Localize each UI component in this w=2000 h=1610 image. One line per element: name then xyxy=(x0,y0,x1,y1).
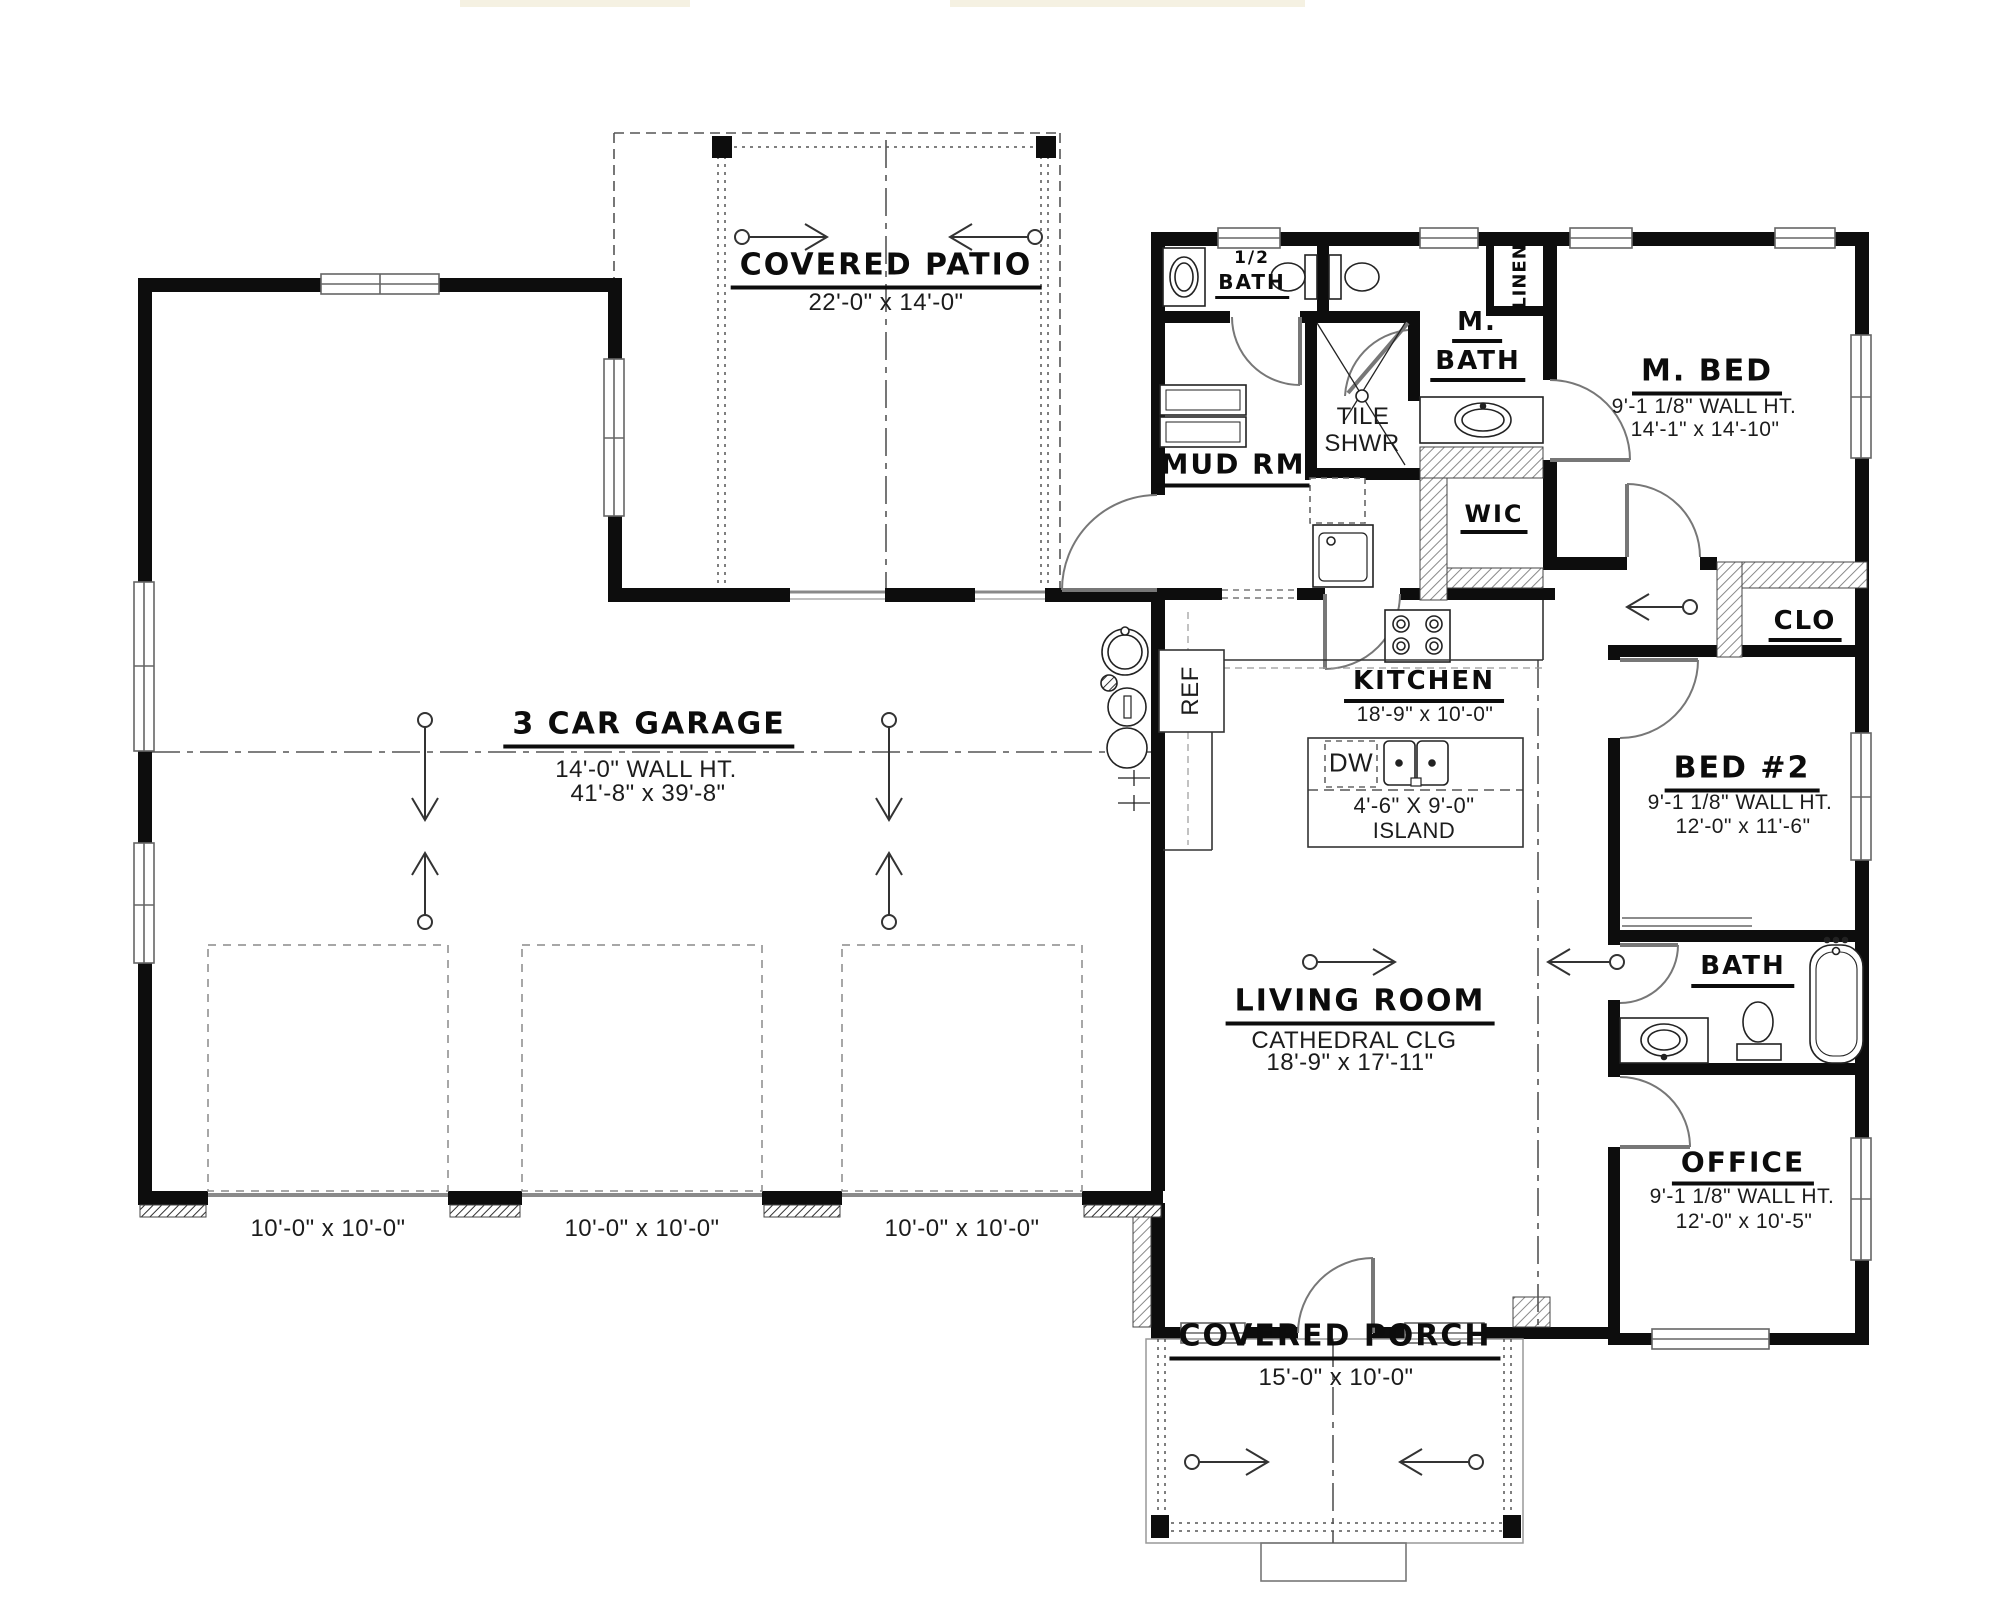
garage-dims: 41'-8" x 39'-8" xyxy=(570,780,725,808)
tile-shower-label-2: SHWR xyxy=(1324,430,1399,458)
bath-title: BATH xyxy=(1691,951,1794,981)
garage-bay-outlines xyxy=(208,945,1082,1191)
office-title: OFFICE xyxy=(1672,1146,1814,1179)
linen-label: LINEN xyxy=(1510,243,1531,309)
tile-shower-label-1: TILE xyxy=(1337,403,1390,431)
kitchen-dims: 18'-9" x 10'-0" xyxy=(1357,703,1494,727)
garage-door-1-dims: 10'-0" x 10'-0" xyxy=(250,1215,405,1243)
half-bath-label-1: 1/2 xyxy=(1234,248,1270,268)
bed2-dims: 12'-0" x 11'-6" xyxy=(1675,815,1810,839)
patio-title: COVERED PATIO xyxy=(731,248,1042,283)
porch-dims: 15'-0" x 10'-0" xyxy=(1258,1364,1413,1392)
patio-post xyxy=(1036,136,1056,158)
garage-door-3-dims: 10'-0" x 10'-0" xyxy=(884,1215,1039,1243)
master-bed-title: M. BED xyxy=(1632,354,1782,389)
patio-dims: 22'-0" x 14'-0" xyxy=(808,289,963,317)
porch-post xyxy=(1151,1515,1169,1538)
island-dims: 4'-6" X 9'-0" xyxy=(1353,793,1474,819)
bed2-wall-height: 9'-1 1/8" WALL HT. xyxy=(1648,791,1833,815)
covered-patio-outline xyxy=(614,133,1060,588)
master-bath-label-1: M. xyxy=(1452,307,1502,337)
patio-post xyxy=(712,136,732,158)
master-bed-dims: 14'-1" x 14'-10" xyxy=(1631,418,1780,442)
kitchen-title: KITCHEN xyxy=(1344,666,1504,696)
island-label: ISLAND xyxy=(1373,818,1455,844)
garage-title: 3 CAR GARAGE xyxy=(503,707,794,742)
mud-room-title: MUD RM xyxy=(1156,448,1309,481)
closet-title: CLO xyxy=(1769,606,1842,636)
porch-post xyxy=(1503,1515,1521,1538)
wic-title: WIC xyxy=(1460,500,1527,528)
porch-title: COVERED PORCH xyxy=(1169,1319,1500,1354)
bed2-title: BED #2 xyxy=(1665,751,1820,786)
master-bath-label-2: BATH xyxy=(1430,346,1525,376)
living-room-dims: 18'-9" x 17'-11" xyxy=(1266,1049,1433,1077)
living-room-title: LIVING ROOM xyxy=(1226,984,1495,1019)
dishwasher-label: DW xyxy=(1329,748,1373,779)
floor-plan-canvas: COVERED PATIO 22'-0" x 14'-0" 3 CAR GARA… xyxy=(0,0,2000,1610)
half-bath-label-2: BATH xyxy=(1215,270,1289,294)
fridge-label: REF xyxy=(1177,666,1205,716)
master-bed-wall-height: 9'-1 1/8" WALL HT. xyxy=(1612,395,1797,419)
office-wall-height: 9'-1 1/8" WALL HT. xyxy=(1650,1185,1835,1209)
garage-door-2-dims: 10'-0" x 10'-0" xyxy=(564,1215,719,1243)
office-dims: 12'-0" x 10'-5" xyxy=(1676,1210,1813,1234)
porch-steps xyxy=(1261,1543,1406,1581)
